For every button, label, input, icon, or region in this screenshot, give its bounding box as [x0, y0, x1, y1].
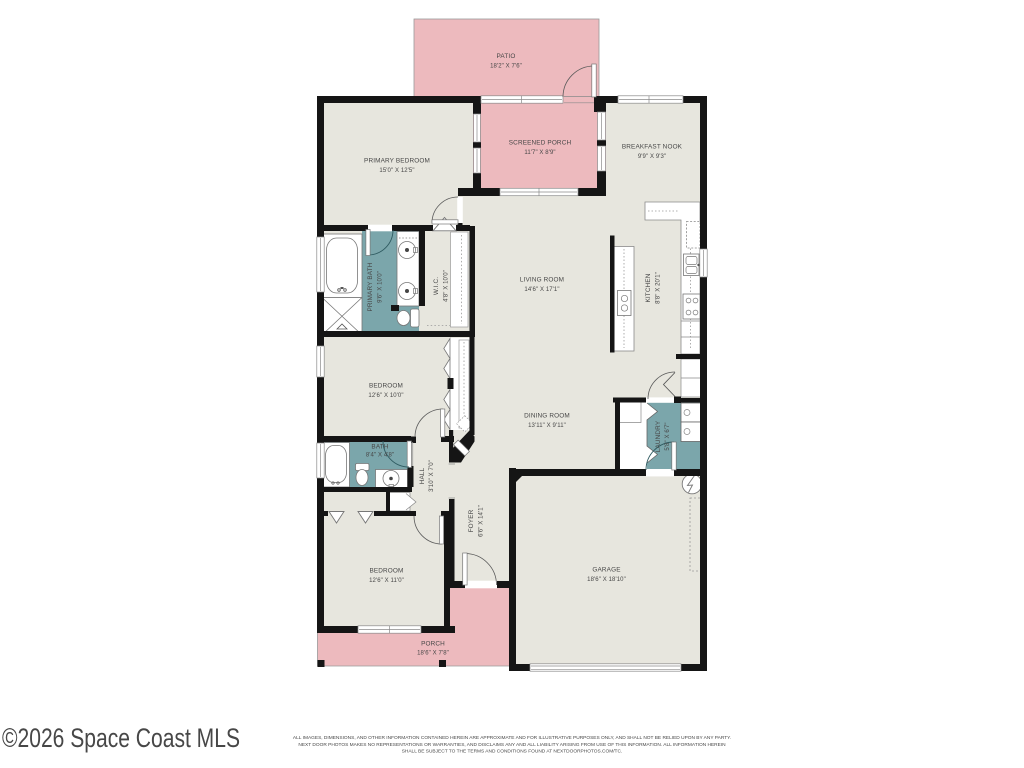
svg-text:13'11" X 9'11": 13'11" X 9'11" [528, 423, 566, 429]
svg-text:LAUNDRY: LAUNDRY [655, 420, 662, 452]
svg-text:18'2" X 7'6": 18'2" X 7'6" [490, 64, 522, 70]
svg-text:©2026 Space Coast MLS: ©2026 Space Coast MLS [2, 723, 240, 753]
svg-text:FOYER: FOYER [468, 509, 475, 532]
svg-text:9'6" X 10'0": 9'6" X 10'0" [378, 271, 384, 303]
svg-text:W.I.C.: W.I.C. [433, 277, 440, 295]
svg-text:14'6" X 17'1": 14'6" X 17'1" [524, 287, 559, 293]
svg-text:12'6" X 10'0": 12'6" X 10'0" [368, 393, 403, 399]
svg-text:18'6" X 7'8": 18'6" X 7'8" [417, 651, 449, 657]
svg-text:BATH: BATH [371, 444, 388, 451]
svg-text:18'6" X 18'10": 18'6" X 18'10" [587, 577, 626, 583]
svg-text:12'6" X 11'0": 12'6" X 11'0" [369, 578, 404, 584]
svg-text:PATIO: PATIO [497, 53, 516, 60]
svg-text:GARAGE: GARAGE [592, 567, 620, 574]
svg-text:SHALL BE SUBJECT TO THE TERMS: SHALL BE SUBJECT TO THE TERMS AND CONDIT… [402, 749, 623, 755]
svg-text:9'9" X 9'3": 9'9" X 9'3" [638, 154, 666, 160]
svg-text:BEDROOM: BEDROOM [369, 383, 403, 390]
svg-text:BEDROOM: BEDROOM [369, 568, 403, 575]
svg-text:KITCHEN: KITCHEN [645, 273, 652, 302]
svg-text:11'7" X 8'9": 11'7" X 8'9" [524, 150, 555, 156]
svg-text:PRIMARY BEDROOM: PRIMARY BEDROOM [364, 158, 430, 165]
svg-text:BREAKFAST NOOK: BREAKFAST NOOK [622, 144, 683, 151]
svg-text:3'10" X 7'0": 3'10" X 7'0" [429, 460, 435, 492]
svg-text:HALL: HALL [419, 467, 426, 484]
svg-text:PRIMARY BATH: PRIMARY BATH [367, 262, 374, 311]
svg-text:PORCH: PORCH [421, 641, 445, 648]
svg-text:5'8" X 6'7": 5'8" X 6'7" [665, 422, 671, 450]
svg-text:NEXT DOOR PHOTOS MAKES NO REPR: NEXT DOOR PHOTOS MAKES NO REPRESENTATION… [298, 742, 726, 748]
svg-text:6'6" X 14'1": 6'6" X 14'1" [479, 505, 485, 537]
svg-text:8'8" X 20'1": 8'8" X 20'1" [656, 272, 662, 304]
svg-text:15'0" X 12'5": 15'0" X 12'5" [379, 168, 414, 174]
svg-text:ALL IMAGES, DIMENSIONS, AND OT: ALL IMAGES, DIMENSIONS, AND OTHER INFORM… [293, 735, 731, 741]
svg-text:DINING ROOM: DINING ROOM [524, 413, 570, 420]
svg-text:4'8" X 10'0": 4'8" X 10'0" [444, 270, 450, 302]
svg-text:8'4" X 4'8": 8'4" X 4'8" [366, 453, 394, 459]
svg-text:LIVING ROOM: LIVING ROOM [520, 277, 564, 284]
svg-text:SCREENED PORCH: SCREENED PORCH [509, 140, 572, 147]
